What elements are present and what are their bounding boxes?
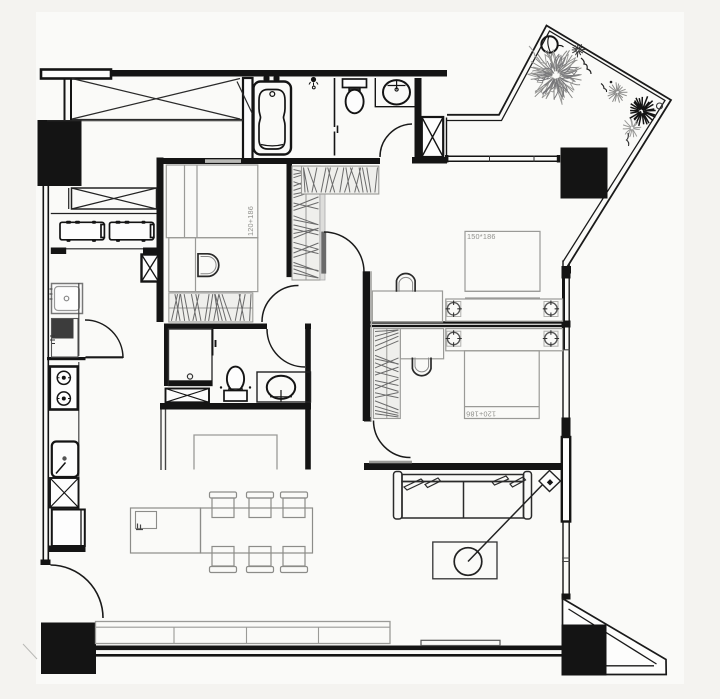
svg-text:120+186: 120+186	[246, 206, 255, 236]
svg-text:150*186: 150*186	[467, 232, 496, 241]
svg-text:120+186: 120+186	[466, 410, 496, 419]
